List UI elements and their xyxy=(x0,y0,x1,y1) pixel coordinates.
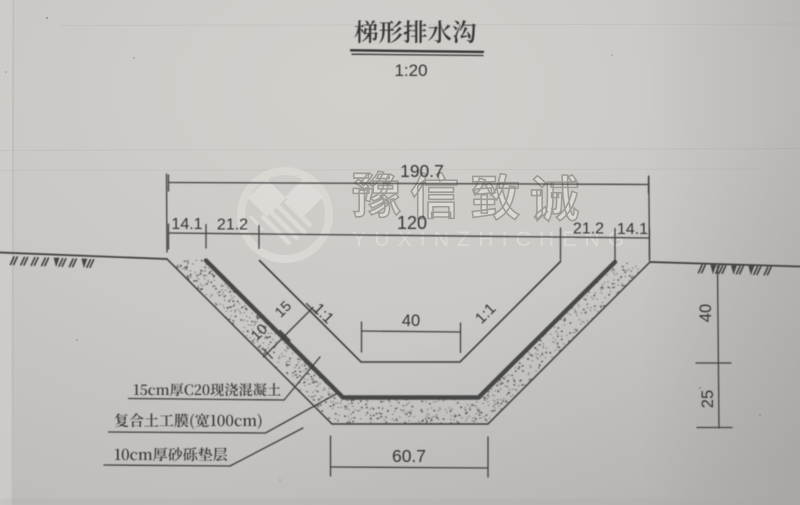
svg-text:21.2: 21.2 xyxy=(573,221,604,238)
svg-text:14.1: 14.1 xyxy=(617,221,648,238)
svg-text:40: 40 xyxy=(697,304,715,322)
svg-text:1:20: 1:20 xyxy=(394,61,427,80)
svg-text:60.7: 60.7 xyxy=(392,446,426,466)
svg-text:21.2: 21.2 xyxy=(217,217,248,234)
svg-text:120: 120 xyxy=(397,213,427,233)
svg-text:190.7: 190.7 xyxy=(400,161,444,181)
svg-text:25: 25 xyxy=(699,390,717,408)
svg-text:40: 40 xyxy=(402,312,420,330)
svg-text:14.1: 14.1 xyxy=(171,216,202,233)
